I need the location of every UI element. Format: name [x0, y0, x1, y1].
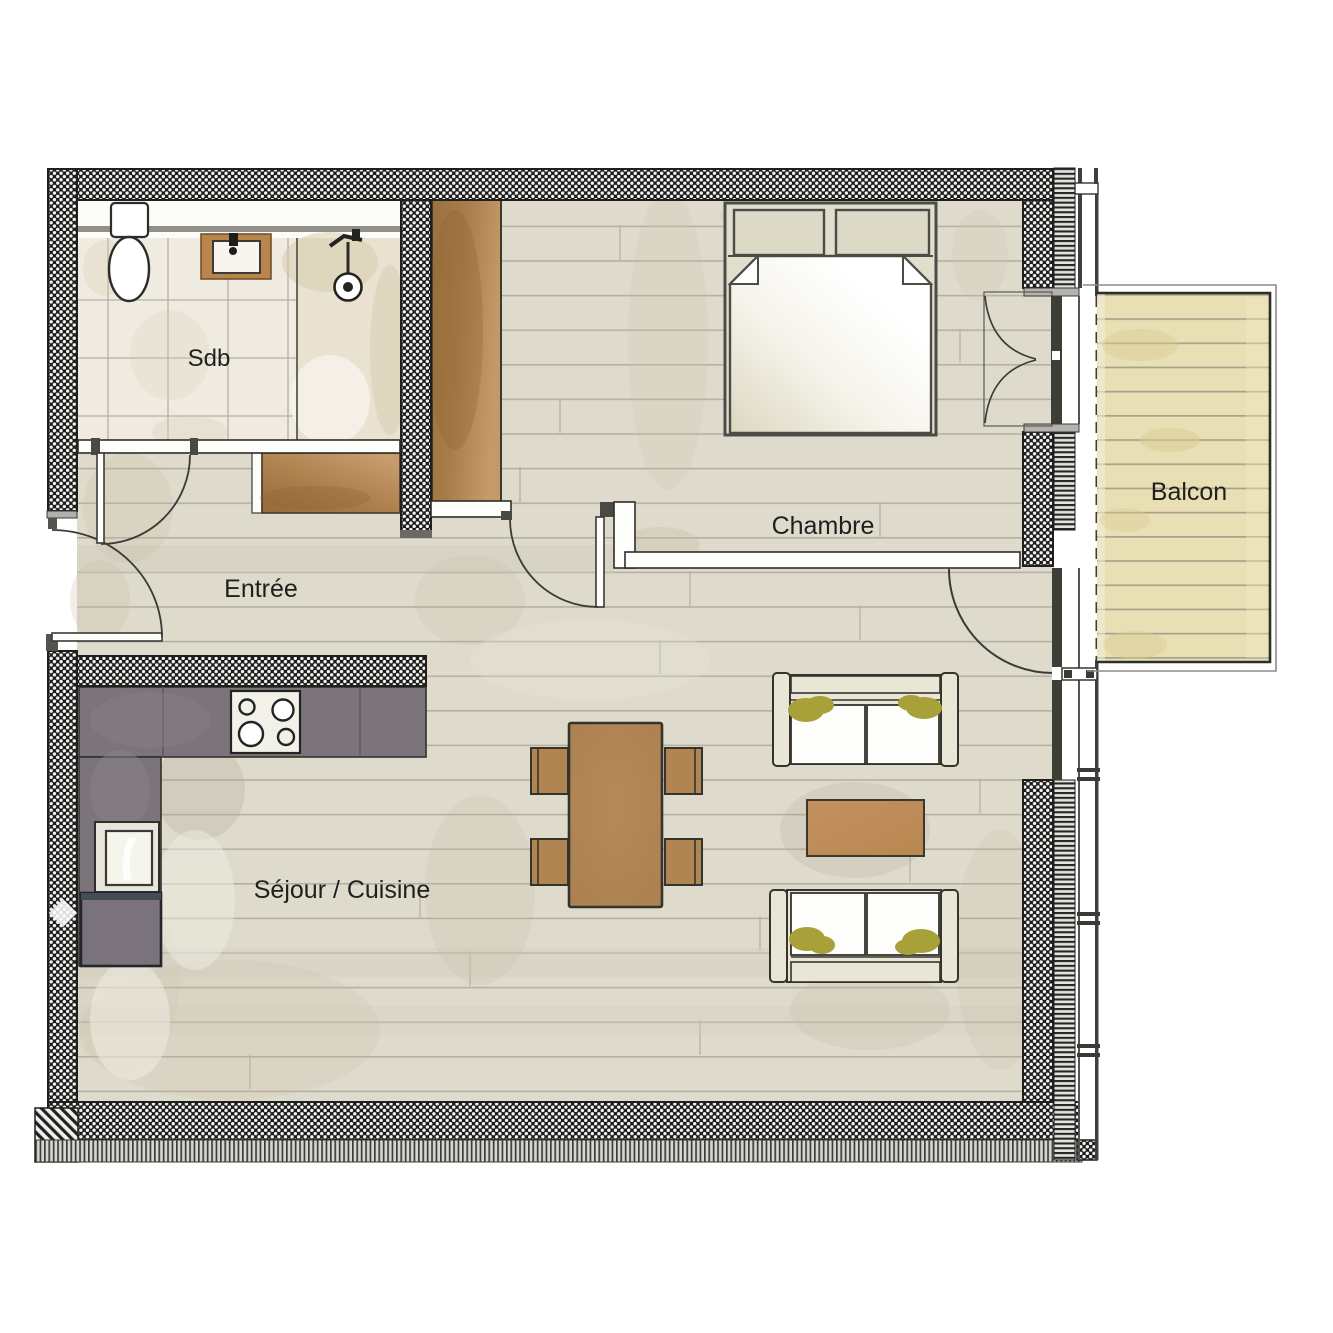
svg-text:Chambre: Chambre	[772, 512, 875, 540]
svg-text:Sdb: Sdb	[188, 345, 231, 372]
svg-text:Balcon: Balcon	[1151, 478, 1227, 506]
svg-text:Entrée: Entrée	[224, 575, 298, 603]
svg-text:Séjour / Cuisine: Séjour / Cuisine	[254, 876, 430, 904]
